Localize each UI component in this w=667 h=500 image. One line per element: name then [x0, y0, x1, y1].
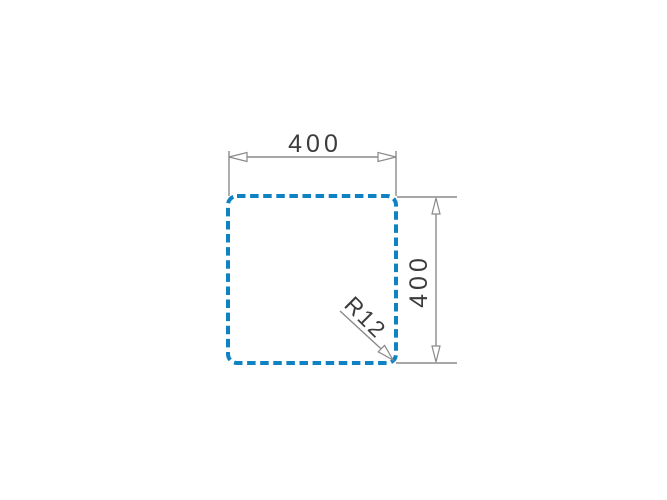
sink-cutout-dimension-diagram: 400 400 R12	[0, 0, 667, 500]
height-dimension-label: 400	[405, 254, 433, 308]
drawing-background	[0, 0, 667, 500]
width-dimension-label: 400	[288, 130, 342, 158]
technical-drawing-page: 400 400 R12	[0, 0, 667, 500]
